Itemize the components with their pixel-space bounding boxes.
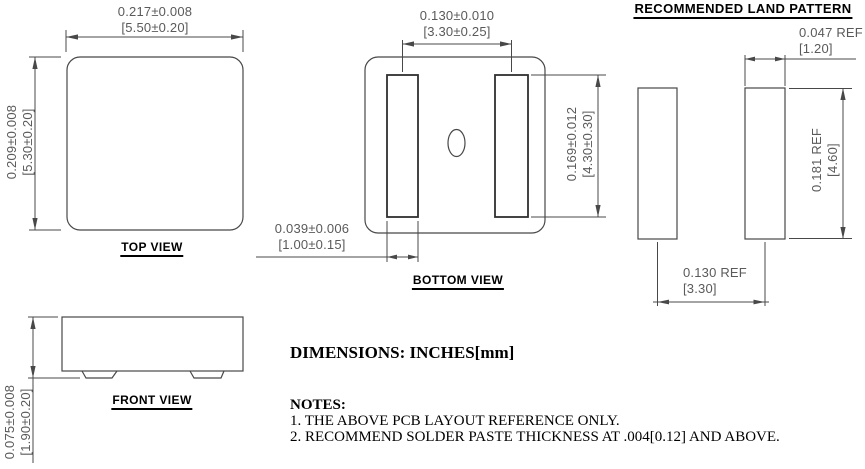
bottom-view-pitch-extension-lines [403, 40, 512, 72]
bottom-view-pad-width-extension-lines [387, 221, 418, 262]
bottom-view-pitch-dimension: 0.130±0.010 [3.30±0.25] [387, 8, 527, 40]
bottom-view-left-pad [387, 75, 418, 217]
dimensions-units-note: DIMENSIONS: INCHES[mm] [290, 343, 514, 363]
top-view-height-dimension: 0.209±0.008 [5.30±0.20] [4, 105, 36, 179]
note-line-2: 2. RECOMMEND SOLDER PASTE THICKNESS AT .… [290, 429, 780, 446]
dimension-value-mm: [5.50±0.20] [85, 20, 225, 36]
land-pad-width-dimension: 0.047 REF [1.20] [799, 25, 863, 57]
dimension-value-inches: 0.130 REF [683, 265, 747, 281]
land-pattern-left-pad [638, 88, 677, 239]
dimension-value-inches: 0.169±0.012 [564, 107, 580, 181]
front-view-right-foot [190, 371, 224, 378]
bottom-view-pad-height-dimension: 0.169±0.012 [4.30±0.30] [564, 107, 596, 181]
land-pattern-title: RECOMMENDED LAND PATTERN [633, 1, 852, 19]
top-view-label: TOP VIEW [120, 240, 183, 257]
front-view-body-outline [62, 317, 243, 371]
bottom-view-right-pad [495, 75, 528, 217]
bottom-view-body-outline [365, 57, 545, 233]
dimension-value-mm: [4.60] [825, 128, 841, 192]
dimension-value-inches: 0.209±0.008 [4, 105, 20, 179]
front-view-label: FRONT VIEW [111, 393, 192, 410]
dimension-arrowheads [30, 34, 845, 378]
front-view-height-extension-lines [28, 317, 80, 378]
notes-title: NOTES: [290, 397, 346, 414]
bottom-view-label: BOTTOM VIEW [412, 273, 504, 290]
bottom-view-center-hole [448, 130, 465, 157]
top-view-body-outline [67, 57, 243, 230]
front-view-height-dimension: 0.075±0.008 [1.90±0.20] [2, 385, 34, 459]
dimension-value-mm: [5.30±0.20] [20, 105, 36, 179]
dimension-value-mm: [3.30] [683, 281, 747, 297]
land-pattern-right-pad [745, 88, 785, 239]
dimension-value-inches: 0.181 REF [809, 128, 825, 192]
dimension-value-mm: [1.20] [799, 41, 863, 57]
land-pad-height-dimension: 0.181 REF [4.60] [809, 128, 841, 192]
dimension-value-mm: [4.30±0.30] [580, 107, 596, 181]
datasheet-drawing-page: 0.217±0.008 [5.50±0.20] 0.209±0.008 [5.3… [0, 0, 865, 469]
front-view-left-foot [82, 371, 117, 378]
dimension-value-inches: 0.039±0.006 [242, 221, 382, 237]
dimension-value-inches: 0.217±0.008 [85, 4, 225, 20]
dimension-value-mm: [3.30±0.25] [387, 24, 527, 40]
dimension-value-inches: 0.047 REF [799, 25, 863, 41]
top-view-width-dimension: 0.217±0.008 [5.50±0.20] [85, 4, 225, 36]
dimension-value-inches: 0.075±0.008 [2, 385, 18, 459]
bottom-view-pad-width-dimension: 0.039±0.006 [1.00±0.15] [242, 221, 382, 253]
note-line-1: 1. THE ABOVE PCB LAYOUT REFERENCE ONLY. [290, 413, 620, 430]
land-pad-pitch-dimension: 0.130 REF [3.30] [683, 265, 747, 297]
dimension-value-inches: 0.130±0.010 [387, 8, 527, 24]
dimension-value-mm: [1.00±0.15] [242, 237, 382, 253]
dimension-value-mm: [1.90±0.20] [18, 385, 34, 459]
